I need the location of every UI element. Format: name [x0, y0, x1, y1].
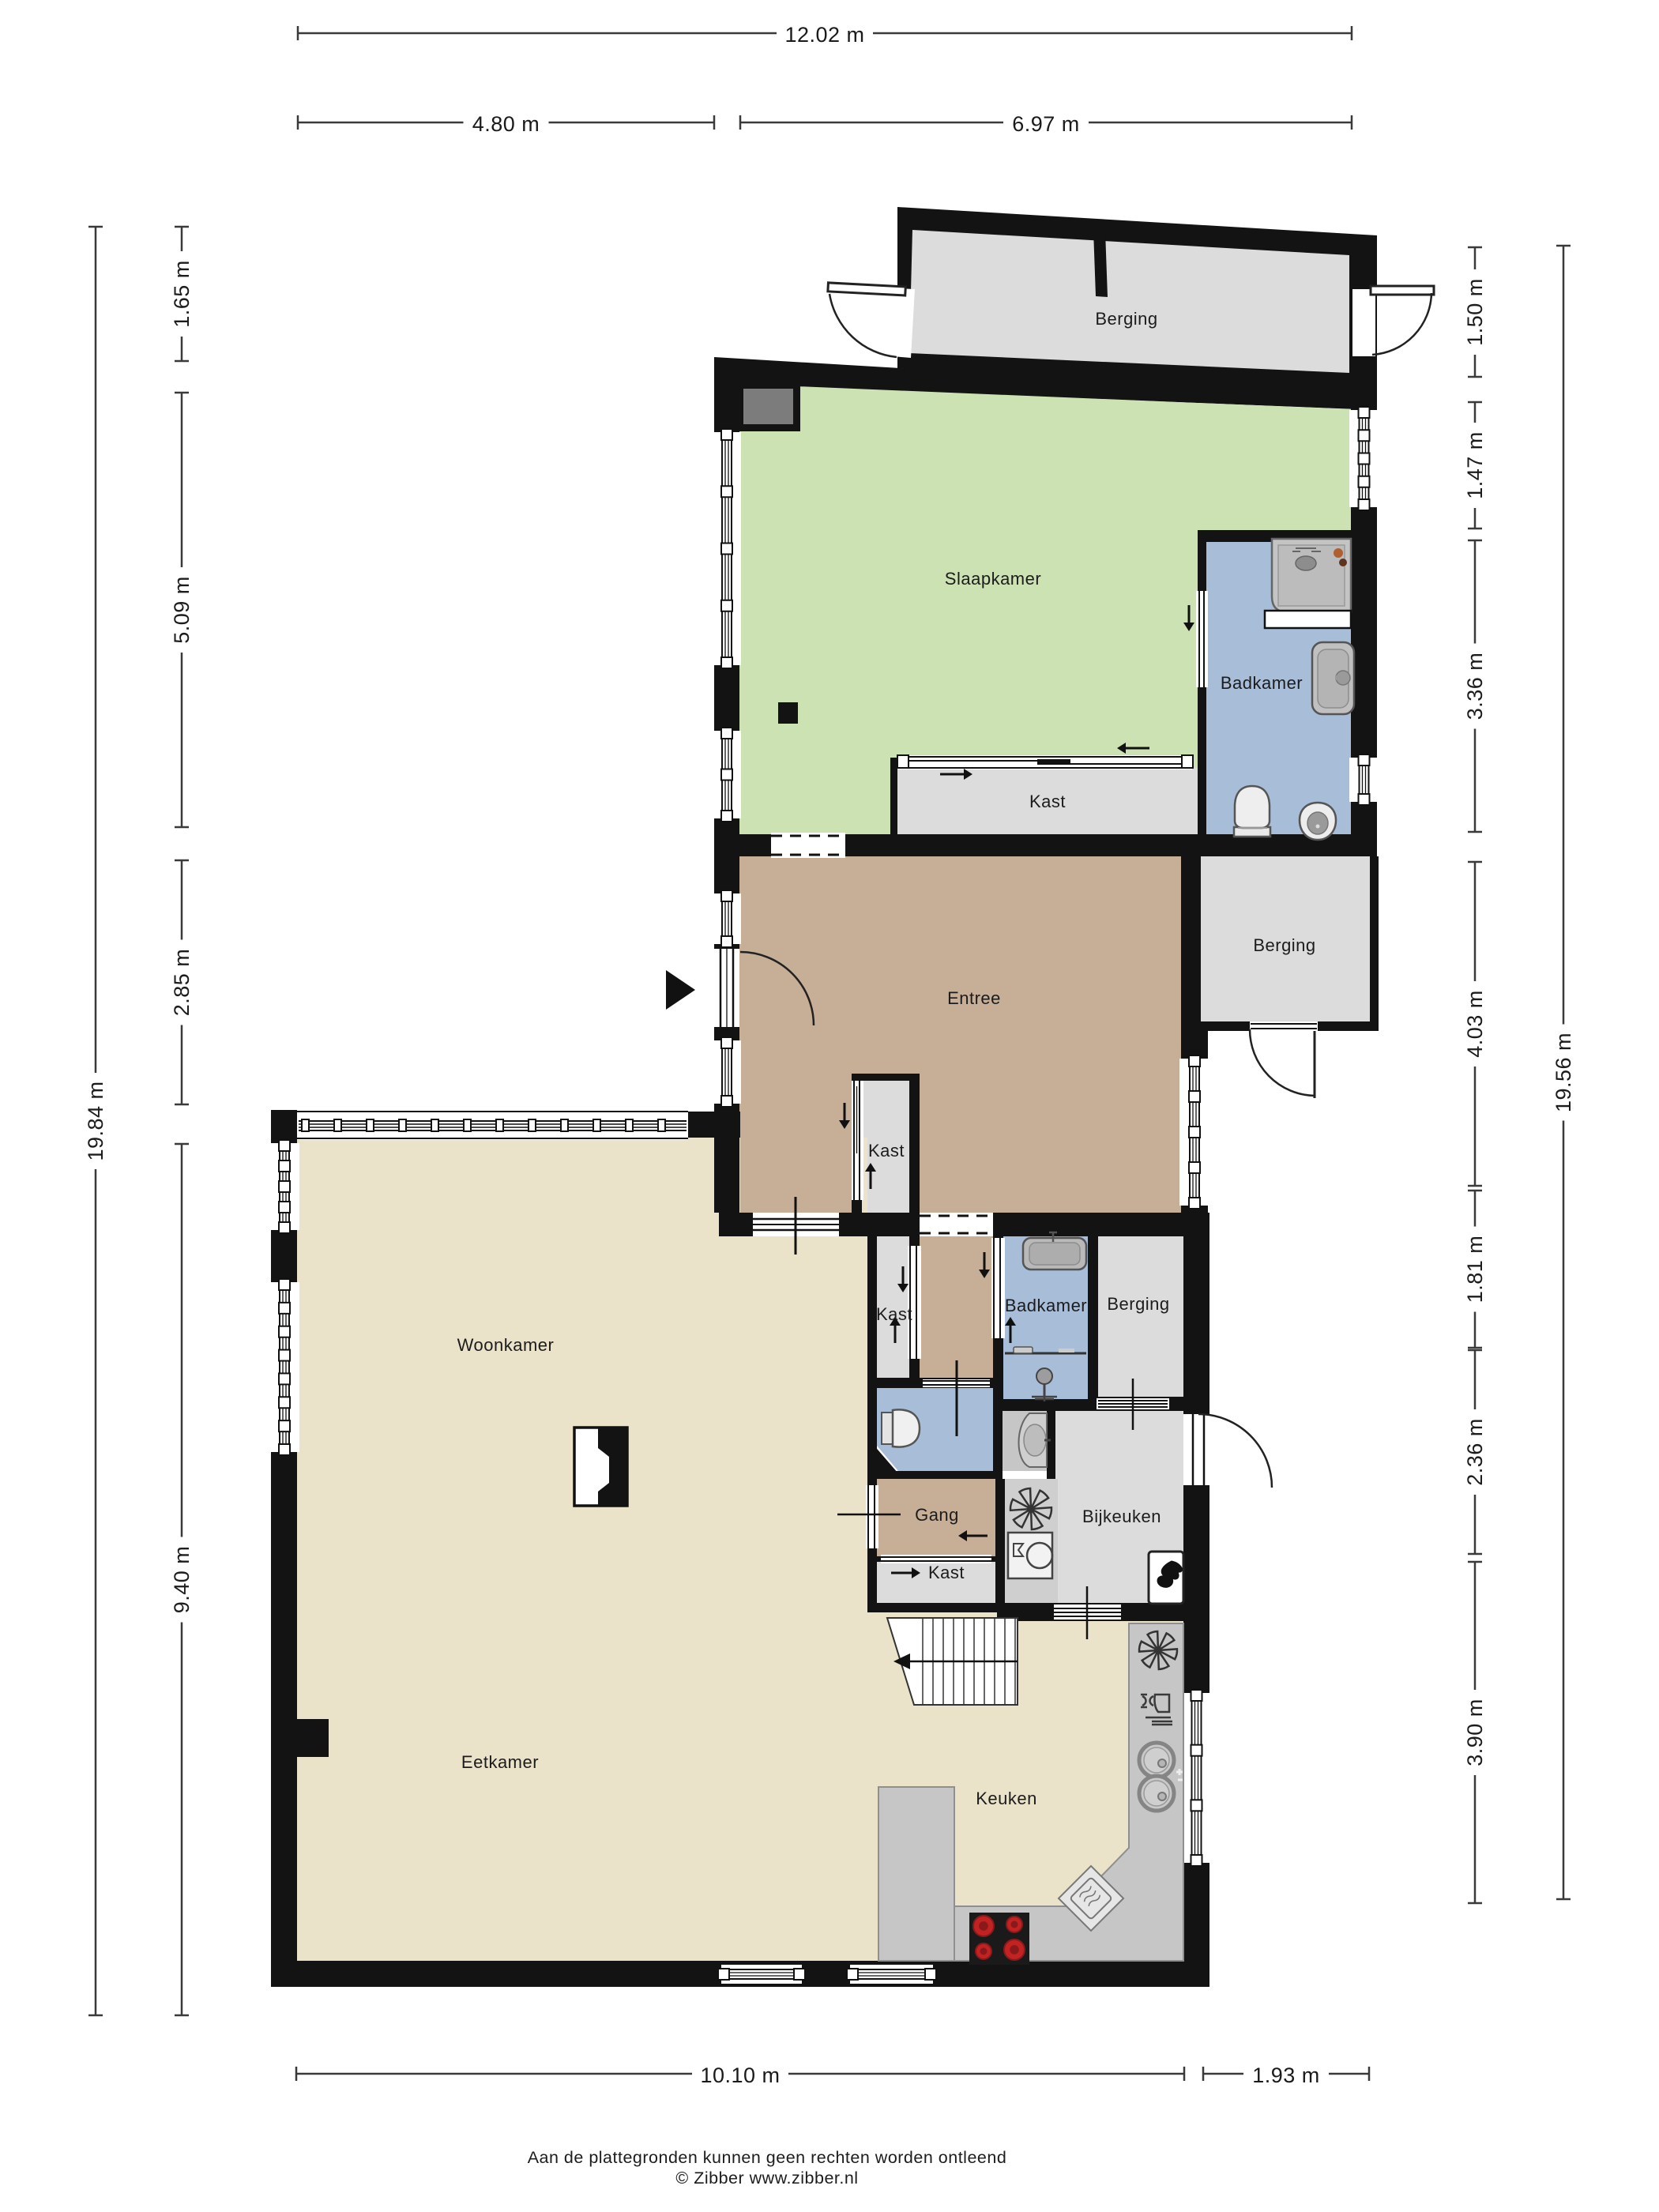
svg-text:© Zibber www.zibber.nl: © Zibber www.zibber.nl: [675, 2169, 858, 2188]
svg-text:Kast: Kast: [868, 1141, 905, 1161]
svg-text:10.10 m: 10.10 m: [700, 2063, 780, 2087]
svg-text:Kast: Kast: [1029, 792, 1066, 811]
svg-text:Berging: Berging: [1107, 1294, 1169, 1314]
svg-text:Kast: Kast: [876, 1304, 912, 1324]
svg-text:6.97 m: 6.97 m: [1012, 112, 1080, 136]
svg-text:9.40 m: 9.40 m: [170, 1546, 194, 1614]
svg-text:1.47 m: 1.47 m: [1463, 431, 1487, 499]
svg-text:1.50 m: 1.50 m: [1463, 278, 1487, 346]
svg-text:Badkamer: Badkamer: [1221, 673, 1303, 693]
svg-text:1.93 m: 1.93 m: [1252, 2063, 1320, 2087]
svg-text:19.56 m: 19.56 m: [1552, 1033, 1575, 1112]
svg-text:2.36 m: 2.36 m: [1463, 1418, 1487, 1486]
svg-text:Berging: Berging: [1253, 935, 1315, 955]
svg-text:Aan de plattegronden kunnen ge: Aan de plattegronden kunnen geen rechten…: [528, 2148, 1007, 2167]
svg-text:Gang: Gang: [915, 1505, 959, 1525]
svg-text:3.90 m: 3.90 m: [1463, 1698, 1487, 1766]
svg-text:1.81 m: 1.81 m: [1463, 1236, 1487, 1303]
svg-text:4.80 m: 4.80 m: [472, 112, 540, 136]
svg-text:Slaapkamer: Slaapkamer: [945, 569, 1041, 589]
svg-text:19.84 m: 19.84 m: [84, 1081, 107, 1161]
svg-text:Keuken: Keuken: [976, 1789, 1037, 1808]
svg-text:Eetkamer: Eetkamer: [461, 1752, 539, 1772]
svg-text:5.09 m: 5.09 m: [170, 576, 194, 644]
svg-text:2.85 m: 2.85 m: [170, 949, 194, 1017]
svg-text:12.02 m: 12.02 m: [784, 23, 864, 47]
svg-text:Entree: Entree: [947, 988, 1001, 1008]
svg-text:Berging: Berging: [1095, 309, 1157, 329]
svg-text:3.36 m: 3.36 m: [1463, 653, 1487, 720]
svg-text:4.03 m: 4.03 m: [1463, 990, 1487, 1058]
svg-text:Kast: Kast: [928, 1563, 965, 1582]
svg-text:1.65 m: 1.65 m: [170, 260, 194, 328]
svg-text:Woonkamer: Woonkamer: [457, 1335, 555, 1355]
svg-text:Bijkeuken: Bijkeuken: [1082, 1507, 1161, 1526]
svg-text:Badkamer: Badkamer: [1005, 1296, 1087, 1315]
